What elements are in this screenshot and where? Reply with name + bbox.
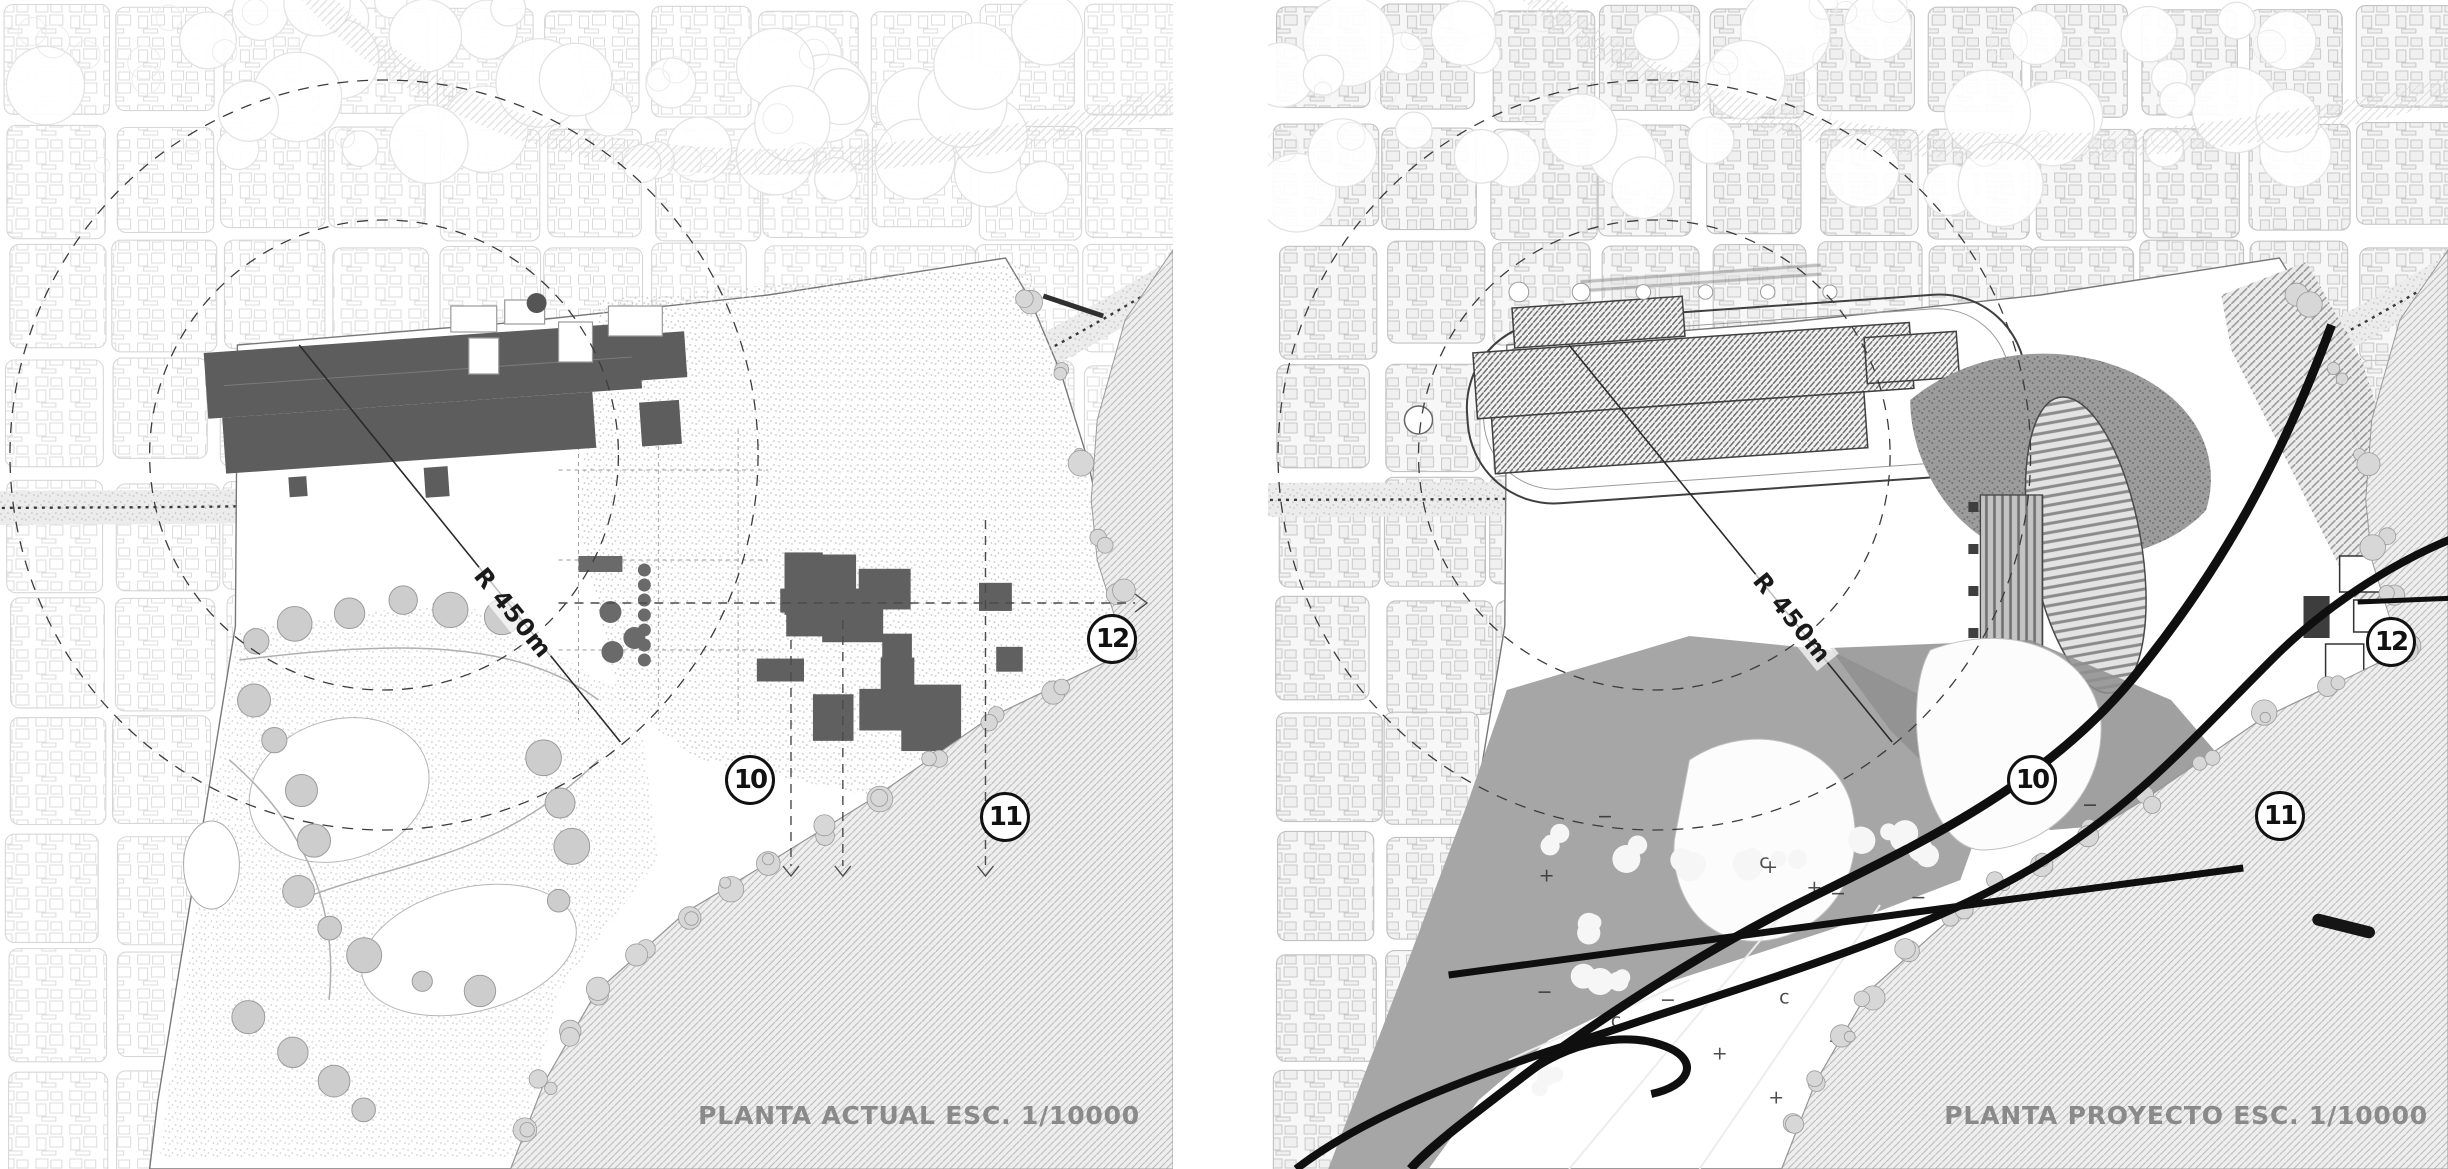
svg-text:+: +	[1768, 1086, 1784, 1108]
svg-text:+: +	[1712, 1042, 1728, 1064]
panel-planta-actual: R 450m 10 11 12 PLANTA ACTUAL ESC. 1/100…	[0, 0, 1173, 1169]
site-plan-drawing-proyecto: +−c+−+−c+−+−c+−+−c+−	[1268, 0, 2448, 1169]
map-marker-12-proyecto: 12	[2366, 617, 2416, 667]
gas-holder	[527, 293, 547, 313]
panel-gutter	[1173, 0, 1268, 1169]
map-marker-11-actual: 11	[980, 792, 1030, 842]
svg-text:+: +	[1762, 856, 1778, 878]
svg-text:+: +	[1539, 865, 1555, 887]
svg-text:−: −	[1536, 981, 1552, 1003]
map-marker-10-proyecto: 10	[2007, 755, 2057, 805]
map-marker-10-actual: 10	[725, 755, 775, 805]
caption-planta-actual: PLANTA ACTUAL ESC. 1/10000	[620, 1101, 1140, 1130]
site-plan-drawing-actual	[0, 0, 1173, 1169]
svg-text:−: −	[2082, 794, 2098, 816]
caption-planta-proyecto: PLANTA PROYECTO ESC. 1/10000	[1908, 1101, 2428, 1130]
map-marker-12-actual: 12	[1087, 614, 1137, 664]
svg-text:−: −	[1597, 805, 1613, 827]
map-marker-11-proyecto: 11	[2255, 791, 2305, 841]
comparison-sheet: { "panels": [ { "id": "planta-actual", "…	[0, 0, 2448, 1169]
svg-text:−: −	[1910, 886, 1926, 908]
panel-planta-proyecto: +−c+−+−c+−+−c+−+−c+− R 450m 10 11 12 PLA…	[1268, 0, 2448, 1169]
svg-text:c: c	[1779, 987, 1789, 1009]
